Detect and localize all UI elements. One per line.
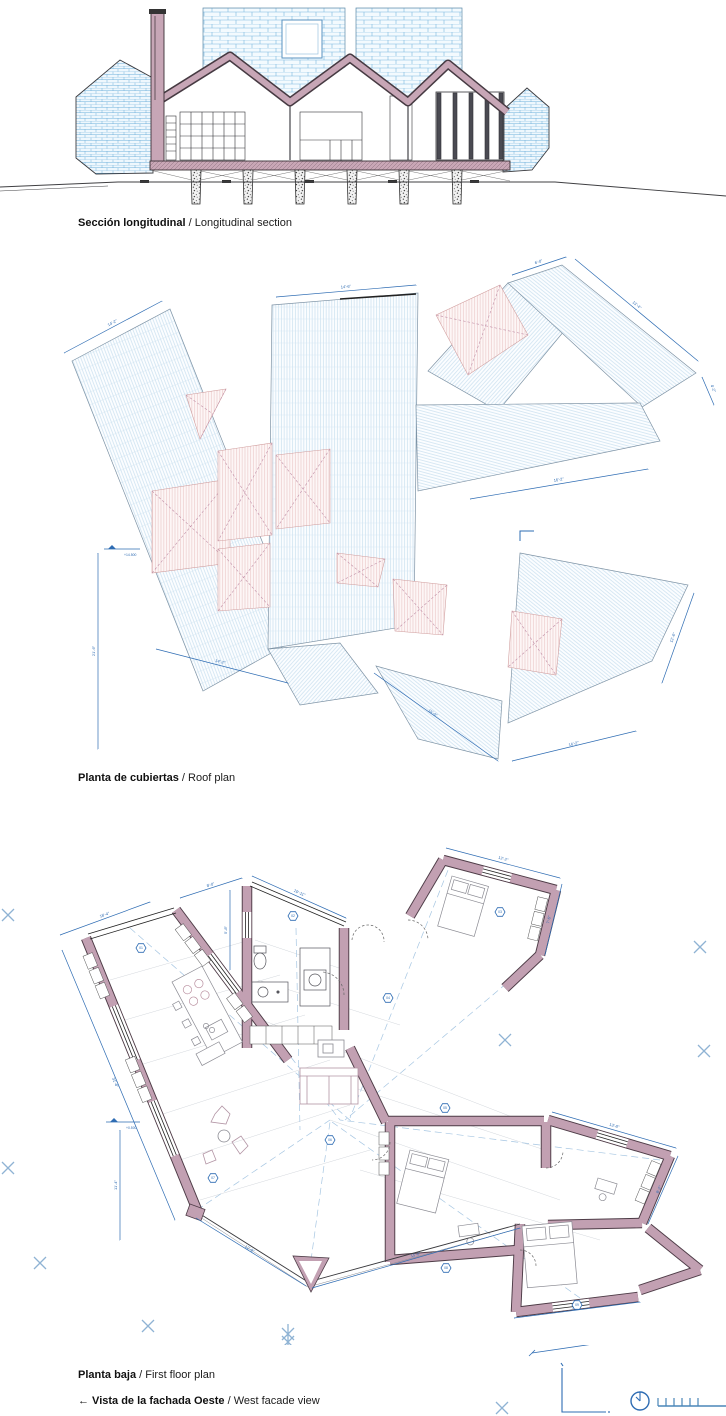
room-tag: 04 <box>386 996 390 1000</box>
section-caption-es: Sección longitudinal <box>78 217 186 229</box>
room-tag: 08 <box>444 1266 448 1270</box>
room-tag: 09 <box>575 1303 579 1307</box>
terrace <box>186 1204 520 1292</box>
section-caption: Sección longitudinal / Longitudinal sect… <box>78 217 292 229</box>
dim-label: 31'-6" <box>111 1077 120 1089</box>
dim-label: 16'-2" <box>553 476 564 483</box>
room-tag: 07 <box>211 1176 215 1180</box>
roof-caption-en: / Roof plan <box>179 772 235 784</box>
wardrobes <box>83 897 661 1204</box>
first-floor-plan-drawing: 18'-4" 31'-6" 8'-0" 10'-11" 5'-8" 12'-2"… <box>0 820 726 1345</box>
dim-label: 14'-6" <box>341 284 352 290</box>
dim-label: 14'-2" <box>107 318 119 327</box>
stray-dimension-tail <box>529 1345 614 1356</box>
corner-registration-mark <box>561 1363 610 1413</box>
dim-label: 10'-11" <box>293 888 307 898</box>
dim-label: 13'-4" <box>631 300 642 311</box>
architecture-sheet: Sección longitudinal / Longitudinal sect… <box>0 0 726 1416</box>
dim-label: 4'-2" <box>710 384 718 394</box>
dim-label: 21'-6" <box>91 645 96 656</box>
elevation-label: +0.500 <box>126 1126 137 1130</box>
roof-plan-drawing: 14'-2" 21'-6" 14'-6" 6'-0" 13'-4" 4'-2" … <box>0 253 726 765</box>
dim-label: 5'-8" <box>223 925 228 934</box>
dim-label: 6'-0" <box>534 258 544 265</box>
room-tag: 03 <box>498 910 502 914</box>
roof-caption: Planta de cubiertas / Roof plan <box>78 772 235 784</box>
chimney-wall <box>149 9 166 162</box>
room-tag: 02 <box>291 914 295 918</box>
dim-label: 12'-6" <box>668 631 676 643</box>
dim-label: 13'-8" <box>609 1122 621 1130</box>
room-tag: 05 <box>443 1106 447 1110</box>
survey-marker-footer <box>496 1402 508 1414</box>
room-tag: 01 <box>139 946 143 950</box>
footer-graphics <box>0 1345 726 1416</box>
dim-label: 11'-4" <box>113 1179 118 1189</box>
clock-icon <box>631 1392 649 1410</box>
room-tag: 06 <box>328 1138 332 1142</box>
roof-caption-es: Planta de cubiertas <box>78 772 179 784</box>
scale-bar <box>658 1398 726 1406</box>
ground-line <box>0 182 726 196</box>
longitudinal-section-drawing <box>0 0 726 212</box>
foundation-piles <box>140 170 510 204</box>
floor-slab <box>150 161 510 170</box>
section-caption-en: / Longitudinal section <box>186 217 292 229</box>
interior-space <box>165 62 503 160</box>
elevation-label: +14.500 <box>124 553 136 557</box>
bathroom-fixtures <box>252 946 330 1006</box>
dim-label: 12'-2" <box>498 855 510 863</box>
